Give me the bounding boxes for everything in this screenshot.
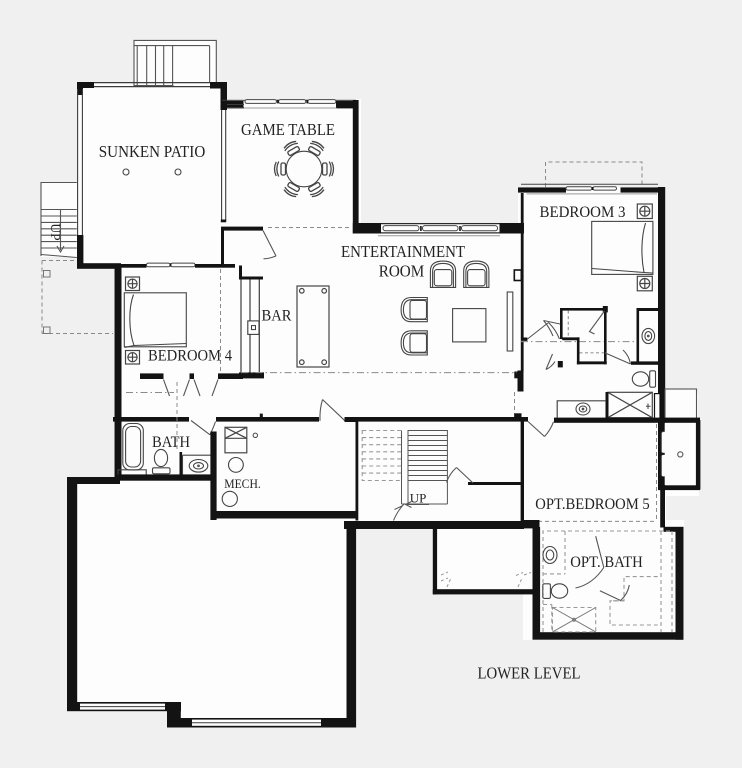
svg-text:MECH.: MECH. xyxy=(224,477,261,491)
svg-text:BAR: BAR xyxy=(262,308,292,325)
svg-text:GAME TABLE: GAME TABLE xyxy=(241,120,335,139)
svg-text:ROOM: ROOM xyxy=(379,262,425,281)
svg-text:BEDROOM 3: BEDROOM 3 xyxy=(540,204,626,221)
svg-text:OPT. BATH: OPT. BATH xyxy=(570,554,643,571)
svg-text:UP: UP xyxy=(410,491,427,506)
svg-text:BEDROOM 4: BEDROOM 4 xyxy=(148,348,232,365)
svg-text:OPT.BEDROOM 5: OPT.BEDROOM 5 xyxy=(535,496,650,513)
svg-text:UP: UP xyxy=(48,223,63,240)
svg-text:BATH: BATH xyxy=(152,434,190,451)
svg-text:LOWER LEVEL: LOWER LEVEL xyxy=(478,664,581,683)
svg-text:ENTERTAINMENT: ENTERTAINMENT xyxy=(341,242,465,261)
svg-text:SUNKEN PATIO: SUNKEN PATIO xyxy=(99,142,206,161)
